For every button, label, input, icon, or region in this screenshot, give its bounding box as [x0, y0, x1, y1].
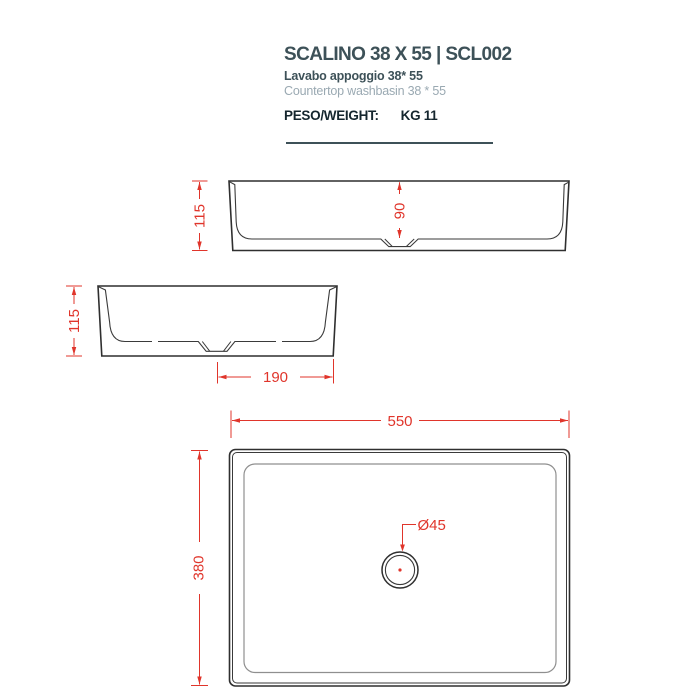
- side-drain-offset-dimension: 190: [218, 359, 334, 386]
- datasheet-page: SCALINO 38 X 55 | SCL002 Lavabo appoggio…: [0, 0, 700, 700]
- drain-center-mark: [398, 568, 401, 571]
- front-height-value: 115: [192, 204, 209, 228]
- technical-drawing: 115 90 115: [0, 0, 700, 700]
- side-drain-offset-value: 190: [263, 369, 288, 386]
- plan-view: Ø45 550 380: [191, 411, 570, 687]
- side-elevation-view: 115 190: [66, 286, 337, 386]
- plan-outer-outline: [230, 450, 570, 687]
- side-height-value: 115: [66, 309, 83, 333]
- side-height-dimension: 115: [66, 286, 83, 356]
- plan-depth-dimension: 380: [191, 451, 209, 686]
- front-elevation-view: 115 90: [192, 181, 570, 251]
- front-height-dimension: 115: [192, 181, 209, 251]
- front-inner-depth-value: 90: [392, 203, 409, 220]
- drain-diameter-value: Ø45: [418, 517, 446, 534]
- side-outer-outline: [98, 286, 337, 356]
- plan-width-value: 550: [387, 413, 412, 430]
- plan-depth-value: 380: [191, 555, 208, 580]
- plan-width-dimension: 550: [231, 411, 569, 439]
